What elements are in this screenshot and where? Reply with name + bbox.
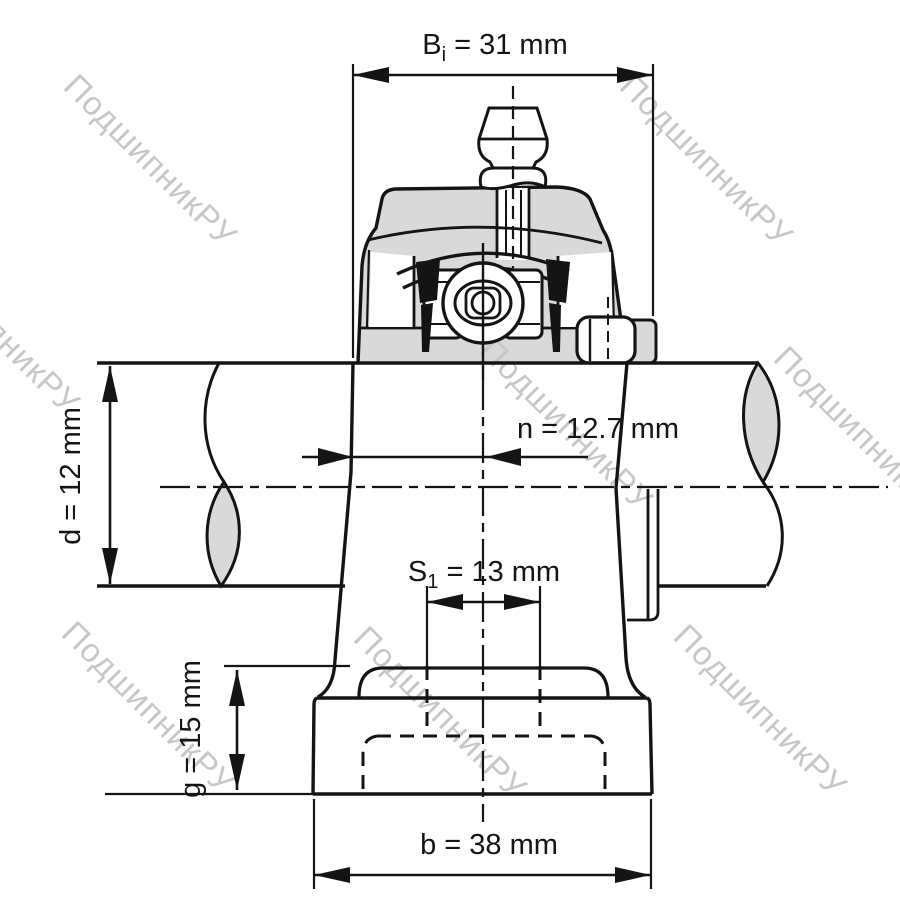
watermark-text: ПодшипникРУ (613, 67, 800, 254)
shaft-break-left-lens (207, 482, 239, 586)
pedestal-left-edge (318, 363, 353, 697)
technical-drawing-canvas: ПодшипникРУ ПодшипникРУ ПодшипникРУ Подш… (0, 0, 900, 900)
seal-right (546, 259, 570, 303)
shaft-break-right-lens (744, 363, 779, 482)
dim-d-label: d = 12 mm (55, 407, 87, 545)
housing-left-pocket (369, 252, 414, 327)
watermark-text: ПодшипникРУ (767, 339, 900, 526)
watermark-text: ПодшипникРУ (347, 619, 534, 806)
watermark-text: ПодшипникРУ (55, 614, 242, 801)
shaft (97, 363, 888, 586)
bearing-unit-drawing: ПодшипникРУ ПодшипникРУ ПодшипникРУ Подш… (0, 0, 900, 900)
base-right-edge (647, 698, 652, 794)
dim-s1-label: S1 = 13 mm (408, 556, 560, 593)
watermark-text: ПодшипникРУ (0, 234, 87, 421)
dimension-g: g = 15 mm (175, 660, 350, 798)
dim-g-label: g = 15 mm (175, 660, 207, 798)
base-left-edge (313, 698, 317, 794)
watermark-text: ПодшипникРУ (667, 617, 854, 804)
dim-bi-label: Bi = 31 mm (422, 29, 567, 66)
watermark-text: ПодшипникРУ (57, 67, 244, 254)
dim-n-label: n = 12.7 mm (517, 413, 679, 445)
shaft-break-left-s (205, 363, 224, 482)
set-screw (577, 317, 635, 363)
seal-left (416, 259, 440, 303)
dim-b-label: b = 38 mm (420, 829, 558, 861)
shaft-break-right-s (763, 482, 782, 586)
